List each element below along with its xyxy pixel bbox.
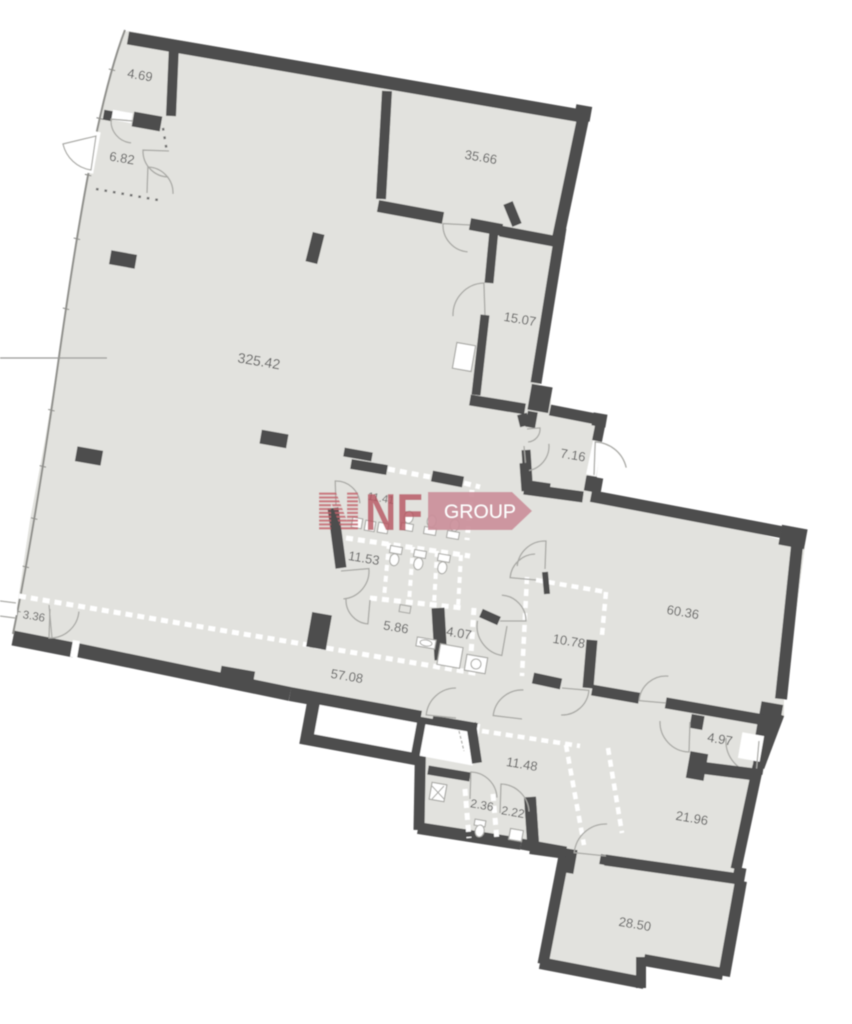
svg-text:GROUP: GROUP <box>444 501 516 523</box>
svg-text:NF: NF <box>365 484 423 542</box>
